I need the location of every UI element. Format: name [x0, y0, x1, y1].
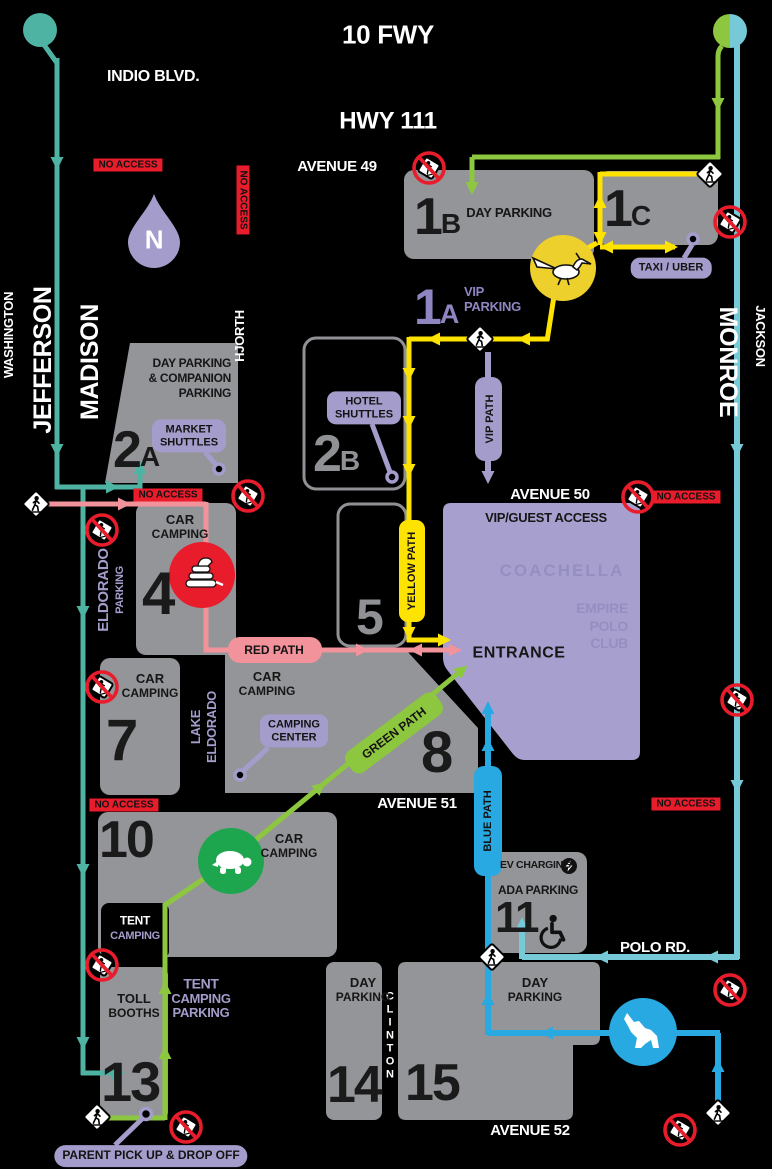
entrance-label: ENTRANCE	[473, 646, 566, 663]
lot-1b-label: DAY PARKING	[466, 206, 552, 220]
no-access-badge: NO ACCESS	[133, 489, 202, 502]
vip-path-label: VIP PATH	[484, 395, 496, 444]
cyan-route-origin	[730, 14, 747, 48]
label-lake-eldorado: ELDORADO	[205, 691, 219, 763]
camping-center-pill: CAMPINGCENTER	[260, 714, 328, 747]
lot-1a-number: 1A	[414, 286, 458, 329]
no-pedestrian-icon	[87, 515, 117, 545]
rattlesnake-marker	[169, 542, 235, 608]
lot-10-label: CARCAMPING	[261, 832, 318, 860]
lot-4-number: 4	[142, 568, 173, 619]
no-pedestrian-icon	[665, 1115, 695, 1145]
coyote-marker	[609, 998, 677, 1066]
venue-watermark-coachella: COACHELLA	[500, 562, 625, 580]
lot-14-number: 14	[327, 1063, 381, 1107]
no-pedestrian-icon	[715, 975, 745, 1005]
taxi-uber-dot	[688, 234, 698, 244]
no-pedestrian-icon	[715, 207, 745, 237]
label-lake: LAKE	[189, 710, 203, 744]
tent-area-label-1: TENT	[183, 977, 218, 992]
no-pedestrian-icon	[623, 482, 653, 512]
lot-8-label: CARCAMPING	[239, 670, 296, 698]
label-madison: MADISON	[77, 304, 103, 420]
tent-area-label-2: CAMPING	[171, 992, 230, 1006]
tent-camping-label-1: TENT	[120, 915, 150, 928]
label-indio-blvd: INDIO BLVD.	[107, 69, 199, 86]
no-access-badge: NO ACCESS	[237, 165, 250, 234]
tent-camping-label-2: CAMPING	[110, 931, 160, 943]
pedestrian-crossing-icon	[23, 491, 50, 518]
taxi-uber-pill: TAXI / UBER	[631, 258, 712, 279]
lot-4-label: CARCAMPING	[152, 513, 209, 541]
lot-13-label: TOLLBOOTHS	[108, 992, 159, 1020]
label-clinton: CLINTON	[384, 991, 396, 1082]
teal-route-origin	[23, 13, 57, 47]
label-washington: WASHINGTON	[2, 292, 16, 378]
lot-8-number: 8	[421, 728, 451, 777]
no-pedestrian-icon	[87, 672, 117, 702]
lot-15-label: DAYPARKING	[508, 976, 562, 1004]
market-shuttles-pill: MARKETSHUTTLES	[152, 419, 226, 452]
lot-7-number: 7	[106, 716, 136, 765]
lot-13-number: 13	[101, 1058, 159, 1106]
lot-2b-number: 2B	[313, 432, 359, 476]
label-avenue-51: AVENUE 51	[377, 796, 457, 812]
no-pedestrian-icon	[171, 1112, 201, 1142]
compass-north-label: N	[145, 226, 163, 253]
blue-path-label: BLUE PATH	[482, 790, 494, 851]
label-eldorado-parking: PARKING	[115, 566, 127, 614]
pedestrian-crossing-icon	[467, 326, 494, 353]
lot-7-label: CARCAMPING	[122, 672, 179, 700]
label-eldorado: ELDORADO	[96, 548, 112, 631]
turtle-marker	[198, 828, 264, 894]
label-polo-rd: POLO RD.	[620, 940, 690, 956]
vip-path-arrow	[482, 471, 495, 484]
pedestrian-crossing-icon	[705, 1100, 732, 1127]
yellow-path-label: YELLOW PATH	[406, 532, 418, 610]
lot-14-label: DAYPARKING	[336, 976, 390, 1004]
label-avenue-49: AVENUE 49	[297, 159, 377, 175]
no-access-badge: NO ACCESS	[93, 159, 162, 172]
tent-area-label-3: PARKING	[173, 1006, 230, 1020]
roadrunner-marker	[530, 235, 596, 301]
lot-1a-label: VIPPARKING	[464, 285, 521, 315]
parent-pickup-pill: PARENT PICK UP & DROP OFF	[54, 1145, 247, 1167]
red-path-label: RED PATH	[244, 643, 304, 657]
camping-center-dot	[235, 770, 245, 780]
hotel-shuttles-pill: HOTELSHUTTLES	[327, 391, 401, 424]
label-jefferson: JEFFERSON	[30, 286, 56, 433]
label-avenue-50: AVENUE 50	[510, 487, 590, 503]
label-avenue-52: AVENUE 52	[490, 1123, 570, 1139]
label-monroe: MONROE	[715, 307, 741, 418]
venue-watermark-empire: EMPIREPOLOCLUB	[576, 600, 628, 653]
label-jackson: JACKSON	[753, 305, 767, 366]
no-access-badge: NO ACCESS	[89, 799, 158, 812]
green-route-origin	[713, 14, 730, 48]
no-pedestrian-icon	[414, 153, 444, 183]
no-access-badge: NO ACCESS	[651, 798, 720, 811]
no-pedestrian-icon	[722, 685, 752, 715]
no-pedestrian-icon	[233, 481, 263, 511]
lot-11-number: 11	[495, 899, 538, 936]
vip-guest-access-label: VIP/GUEST ACCESS	[485, 511, 607, 525]
label-10-fwy: 10 FWY	[342, 21, 434, 48]
lot-1b-number: 1B	[414, 195, 460, 239]
no-access-badge: NO ACCESS	[651, 491, 720, 504]
market-shuttles-dot	[214, 464, 224, 474]
hotel-shuttles-dot	[387, 472, 397, 482]
lot-11-ada-label: ADA PARKING	[498, 884, 578, 897]
lot-15-number: 15	[405, 1061, 459, 1105]
lot-10-number: 10	[99, 818, 153, 862]
lot-5-number: 5	[356, 596, 382, 639]
label-hjorth: HJORTH	[233, 310, 247, 362]
label-hwy-111: HWY 111	[339, 108, 437, 133]
lot-1c-number: 1C	[604, 187, 650, 231]
festival-parking-map: 10 FWY INDIO BLVD. HWY 111 AVENUE 49 AVE…	[0, 0, 772, 1169]
lot-2a-label: DAY PARKING& COMPANIONPARKING	[145, 356, 231, 401]
lot-11-ev-label: EV CHARGING	[500, 860, 571, 871]
no-pedestrian-icon	[87, 950, 117, 980]
